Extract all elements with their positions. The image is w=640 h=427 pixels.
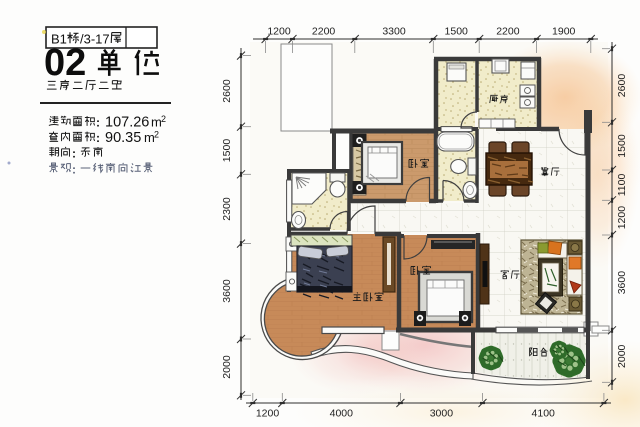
svg-text:2200: 2200 xyxy=(496,26,520,38)
svg-text:02: 02 xyxy=(44,42,86,84)
svg-text:2: 2 xyxy=(154,130,159,140)
svg-text:3600: 3600 xyxy=(616,271,628,295)
svg-text:1500: 1500 xyxy=(221,139,233,163)
svg-text:3000: 3000 xyxy=(430,408,454,420)
svg-text:2200: 2200 xyxy=(312,26,336,38)
svg-text:1100: 1100 xyxy=(616,174,628,197)
svg-text:4100: 4100 xyxy=(532,408,556,420)
svg-text:1500: 1500 xyxy=(616,134,628,158)
svg-text:1200: 1200 xyxy=(267,26,291,38)
svg-text:1900: 1900 xyxy=(552,26,576,38)
svg-text:2000: 2000 xyxy=(616,344,628,368)
svg-text::: : xyxy=(72,147,76,161)
svg-text:2300: 2300 xyxy=(221,197,233,221)
svg-text:1200: 1200 xyxy=(256,408,280,420)
svg-text:3600: 3600 xyxy=(221,279,233,303)
svg-text::: : xyxy=(96,131,100,145)
svg-text:2600: 2600 xyxy=(221,79,233,103)
svg-text::: : xyxy=(96,116,100,130)
svg-text:4000: 4000 xyxy=(330,408,354,420)
svg-text:107.26: 107.26 xyxy=(105,115,149,131)
svg-text:1200: 1200 xyxy=(616,206,628,230)
svg-text::: : xyxy=(72,163,76,177)
svg-text:1500: 1500 xyxy=(445,26,469,38)
svg-text:2000: 2000 xyxy=(221,355,233,379)
svg-text:3300: 3300 xyxy=(382,26,406,38)
svg-text:90.35: 90.35 xyxy=(105,130,141,146)
svg-text:2: 2 xyxy=(161,114,166,124)
svg-text:2600: 2600 xyxy=(616,74,628,98)
